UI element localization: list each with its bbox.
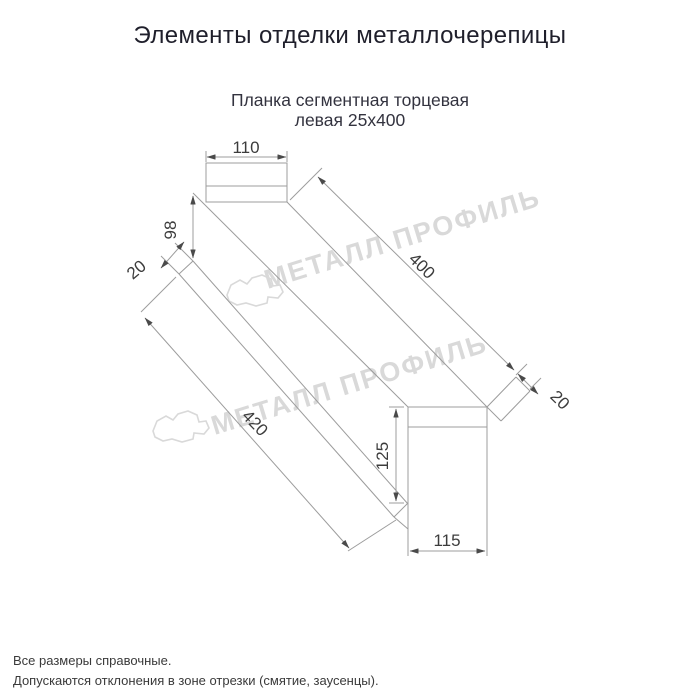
dim-right-hem-label: 20 bbox=[546, 387, 573, 414]
watermark-layer: МЕТАЛЛ ПРОФИЛЬ МЕТАЛЛ ПРОФИЛЬ bbox=[153, 182, 544, 442]
dim-bottom-width-label: 115 bbox=[433, 531, 460, 550]
footnote-line: Все размеры справочные. bbox=[13, 651, 673, 671]
technical-drawing: МЕТАЛЛ ПРОФИЛЬ МЕТАЛЛ ПРОФИЛЬ bbox=[0, 0, 700, 700]
logo-cloud-icon bbox=[153, 411, 209, 442]
footnote-line: Допускаются отклонения в зоне отрезки (с… bbox=[13, 671, 673, 691]
watermark-text: МЕТАЛЛ ПРОФИЛЬ bbox=[261, 182, 545, 295]
footnotes: Все размеры справочные. Допускаются откл… bbox=[13, 651, 673, 691]
dim-right-height-label: 125 bbox=[373, 442, 392, 470]
dim-length-top-label: 400 bbox=[405, 249, 439, 282]
dim-left-hem-label: 20 bbox=[123, 256, 150, 283]
dim-left-height-label: 98 bbox=[161, 221, 180, 240]
dim-top-width-label: 110 bbox=[232, 138, 259, 157]
